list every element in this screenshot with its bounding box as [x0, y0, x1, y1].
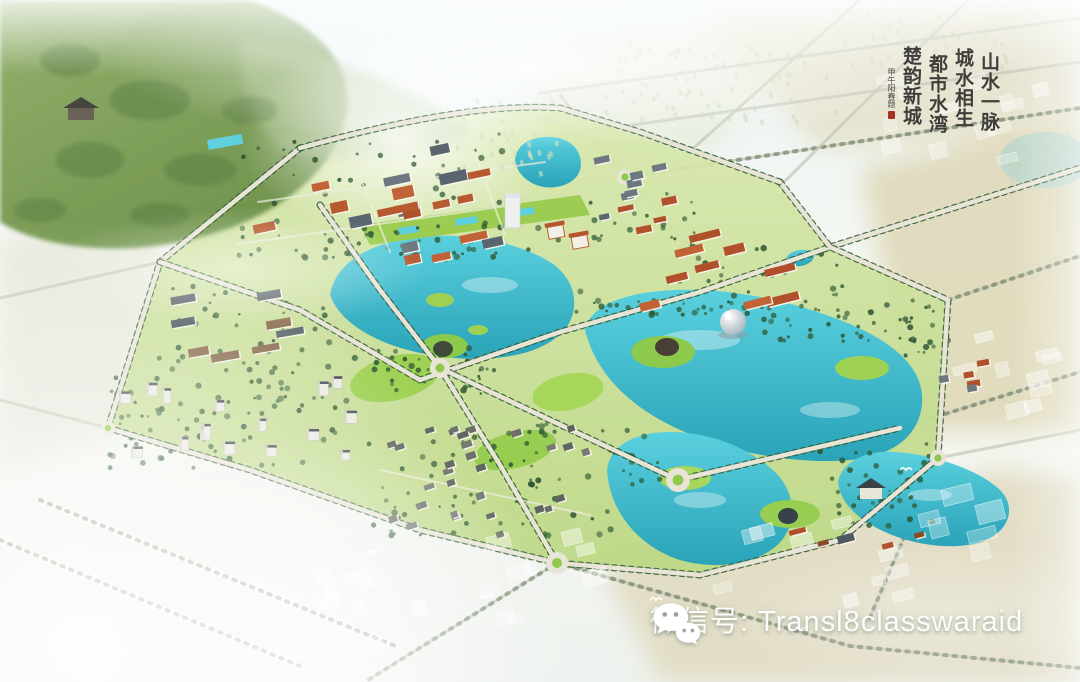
dark-dome-hall-1	[655, 338, 679, 356]
roundabout	[430, 358, 450, 378]
calligraphy-phrase-1: 山水一脉	[976, 46, 1002, 134]
wechat-icon	[650, 598, 702, 650]
roundabout	[666, 468, 690, 492]
calligraphy-title-block: 山水一脉 城水相生 都市水湾 楚韵新城 甲午阳春题	[884, 46, 1002, 134]
watermark-text: 微信号: Transl8classwaraid	[650, 598, 1023, 640]
signature-seal	[888, 111, 895, 119]
white-office-tower	[505, 193, 520, 228]
calligraphy-phrase-4: 楚韵新城	[898, 46, 924, 134]
lake-island	[835, 356, 889, 380]
dark-dome-hall-2	[433, 341, 453, 357]
calligraphy-signature: 甲午阳春题	[884, 46, 898, 134]
wechat-watermark: 微信号: Transl8classwaraid	[650, 598, 1023, 640]
calligraphy-phrase-2: 城水相生	[950, 46, 976, 134]
calligraphy-phrase-3: 都市水湾	[924, 46, 950, 134]
dark-dome-theater	[778, 508, 798, 524]
aerial-masterplan-screenshot: 山水一脉 城水相生 都市水湾 楚韵新城 甲午阳春题 微信号: Transl8cl…	[0, 0, 1080, 682]
roundabout	[930, 450, 946, 466]
